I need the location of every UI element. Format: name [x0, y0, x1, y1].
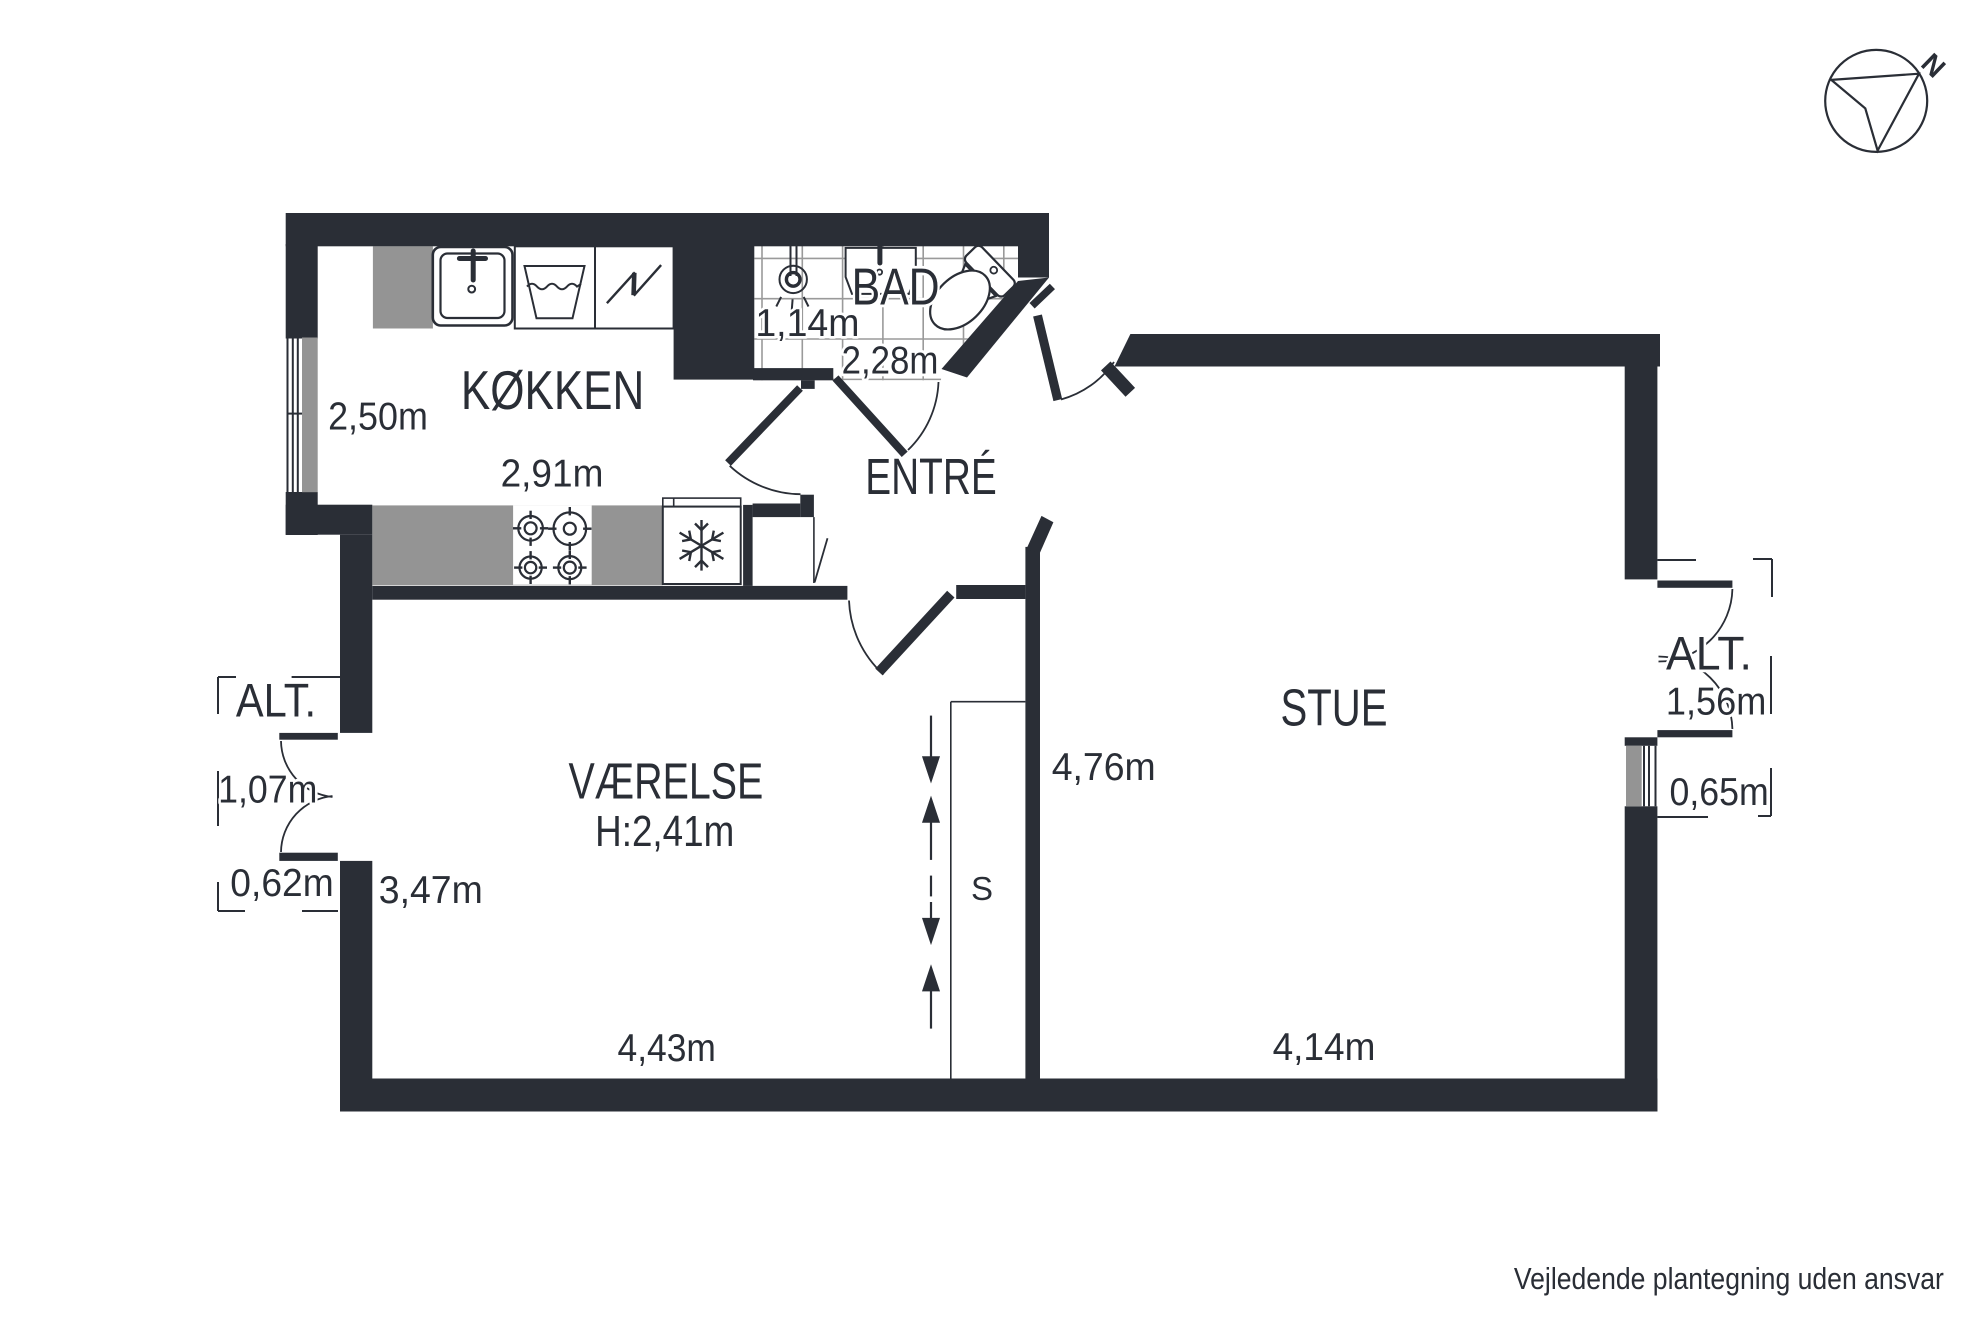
svg-text:1,56m: 1,56m [1666, 680, 1766, 723]
svg-text:VÆRELSE: VÆRELSE [569, 753, 764, 810]
svg-text:2,28m: 2,28m [842, 340, 939, 383]
svg-text:0,62m: 0,62m [230, 862, 333, 905]
svg-text:4,43m: 4,43m [618, 1027, 716, 1070]
svg-text:ALT.: ALT. [236, 674, 316, 727]
svg-text:ENTRÉ: ENTRÉ [865, 448, 997, 505]
svg-text:BAD: BAD [852, 258, 940, 316]
svg-text:ALT.: ALT. [1666, 627, 1752, 680]
svg-text:S: S [971, 870, 993, 907]
svg-text:0,65m: 0,65m [1670, 771, 1769, 814]
svg-text:4,14m: 4,14m [1273, 1026, 1376, 1069]
svg-text:Vejledende plantegning uden an: Vejledende plantegning uden ansvar [1514, 1261, 1944, 1296]
svg-text:4,76m: 4,76m [1052, 746, 1156, 789]
svg-text:KØKKEN: KØKKEN [461, 359, 645, 421]
svg-text:1,07m: 1,07m [218, 768, 317, 811]
svg-text:STUE: STUE [1281, 679, 1388, 737]
svg-text:1,14m: 1,14m [755, 302, 859, 345]
svg-text:2,91m: 2,91m [501, 453, 604, 496]
svg-text:3,47m: 3,47m [379, 869, 483, 912]
svg-text:H:2,41m: H:2,41m [595, 807, 734, 856]
svg-text:2,50m: 2,50m [328, 396, 428, 439]
